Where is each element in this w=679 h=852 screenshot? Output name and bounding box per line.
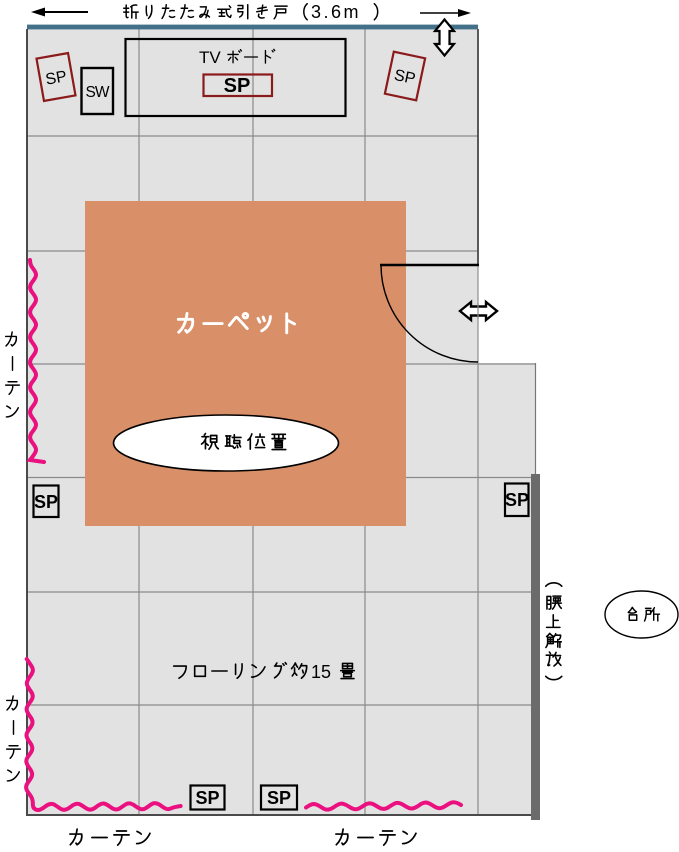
svg-text:SP: SP [505, 490, 529, 510]
svg-text:3.6m: 3.6m [311, 2, 361, 22]
svg-text:SP: SP [224, 75, 251, 97]
svg-text:SP: SP [34, 492, 58, 512]
svg-text:SP: SP [195, 788, 219, 808]
svg-text:15: 15 [311, 662, 331, 682]
svg-text:SW: SW [86, 84, 110, 101]
svg-text:TV: TV [199, 48, 221, 67]
svg-text:SP: SP [267, 788, 291, 808]
